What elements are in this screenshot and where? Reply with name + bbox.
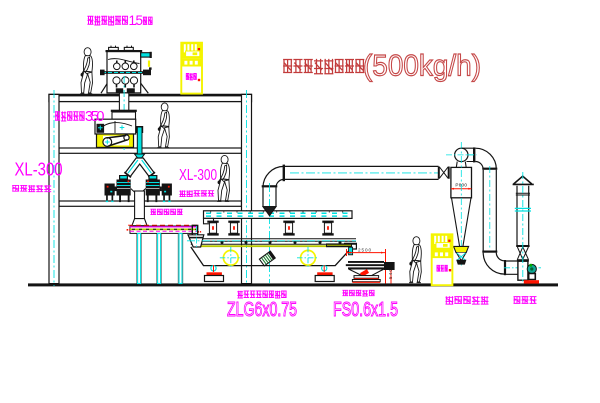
svg-text:FS0.6x1.5: FS0.6x1.5 xyxy=(333,299,398,321)
svg-text:XL-300: XL-300 xyxy=(179,167,217,184)
svg-text:2500: 2500 xyxy=(358,248,371,253)
svg-text:XL-300: XL-300 xyxy=(15,160,63,180)
svg-text:540: 540 xyxy=(388,268,393,279)
svg-text:350: 350 xyxy=(85,109,105,125)
svg-text:1.5: 1.5 xyxy=(129,13,144,28)
svg-text:ZLG6x0.75: ZLG6x0.75 xyxy=(227,299,297,321)
svg-text:(500kg/h): (500kg/h) xyxy=(363,50,481,83)
